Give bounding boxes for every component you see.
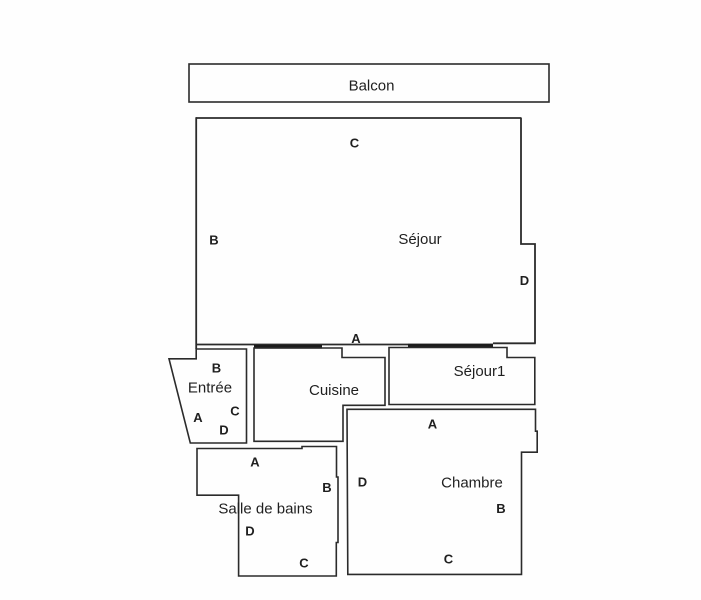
svg-text:Balcon: Balcon [349, 78, 395, 95]
svg-text:D: D [219, 423, 228, 438]
svg-text:B: B [212, 361, 221, 376]
svg-text:D: D [520, 273, 529, 288]
svg-text:A: A [250, 455, 260, 470]
svg-text:C: C [444, 552, 454, 567]
svg-text:C: C [230, 404, 240, 419]
svg-text:A: A [428, 417, 438, 432]
svg-text:Cuisine: Cuisine [309, 382, 359, 399]
svg-text:Chambre: Chambre [441, 475, 503, 492]
svg-text:A: A [193, 410, 203, 425]
svg-text:D: D [358, 475, 367, 490]
svg-text:D: D [245, 524, 254, 539]
svg-text:B: B [322, 480, 331, 495]
svg-text:Séjour1: Séjour1 [454, 363, 506, 380]
svg-text:C: C [299, 556, 309, 571]
svg-text:A: A [351, 331, 361, 346]
svg-text:Entrée: Entrée [188, 380, 232, 397]
svg-text:B: B [496, 501, 505, 516]
svg-text:Séjour: Séjour [398, 231, 441, 248]
svg-text:B: B [209, 233, 218, 248]
svg-text:Salle de bains: Salle de bains [218, 501, 312, 518]
svg-text:C: C [350, 136, 360, 151]
